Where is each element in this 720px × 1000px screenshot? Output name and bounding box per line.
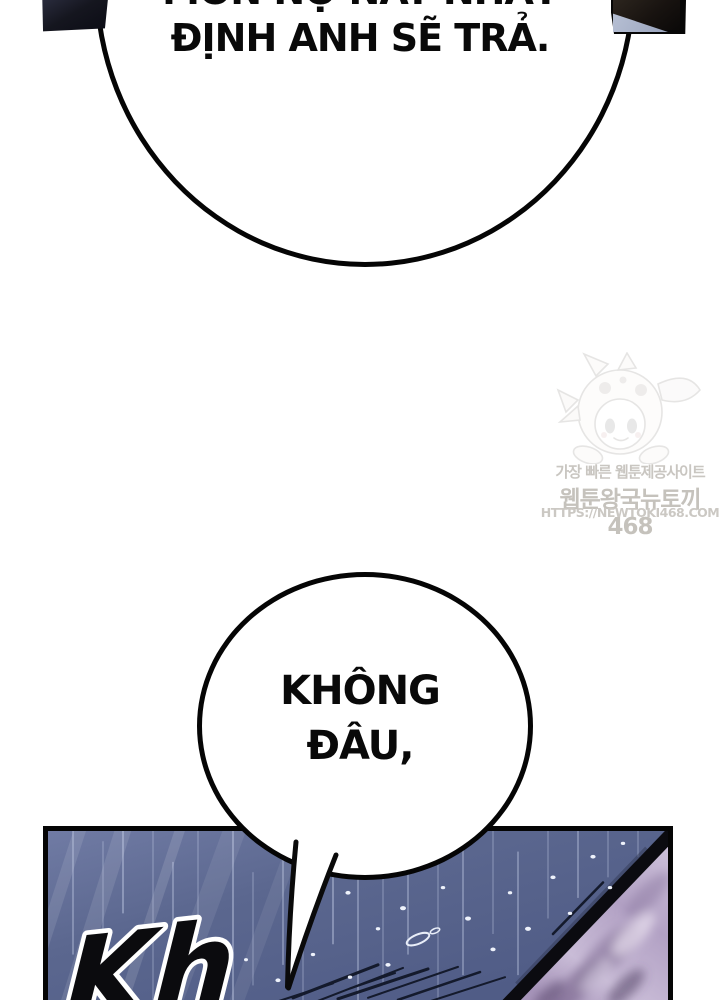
speech-bubble-middle-line2: ĐÂU,	[197, 719, 523, 774]
watermark-tagline: 가장 빠른 웹툰제공사이트	[540, 461, 720, 482]
panel-fragment-top-left	[38, 0, 110, 33]
watermark-url: HTTPS://NEWTOKI468.COM	[540, 505, 720, 520]
watermark-mascot-illustration	[548, 352, 716, 464]
webtoon-page: MÓN NỢ NÀY NHẤT ĐỊNH ANH SẼ TRẢ.	[0, 0, 720, 1000]
speech-bubble-top-line1: MÓN NỢ NÀY NHẤT	[110, 0, 610, 13]
speech-bubble-middle-text: KHÔNG ĐÂU,	[197, 664, 523, 774]
sfx-text-fragment: Kh	[60, 895, 240, 1000]
speech-bubble-top-line2: ĐỊNH ANH SẼ TRẢ.	[110, 16, 610, 60]
speech-bubble-middle-line1: KHÔNG	[197, 664, 523, 719]
